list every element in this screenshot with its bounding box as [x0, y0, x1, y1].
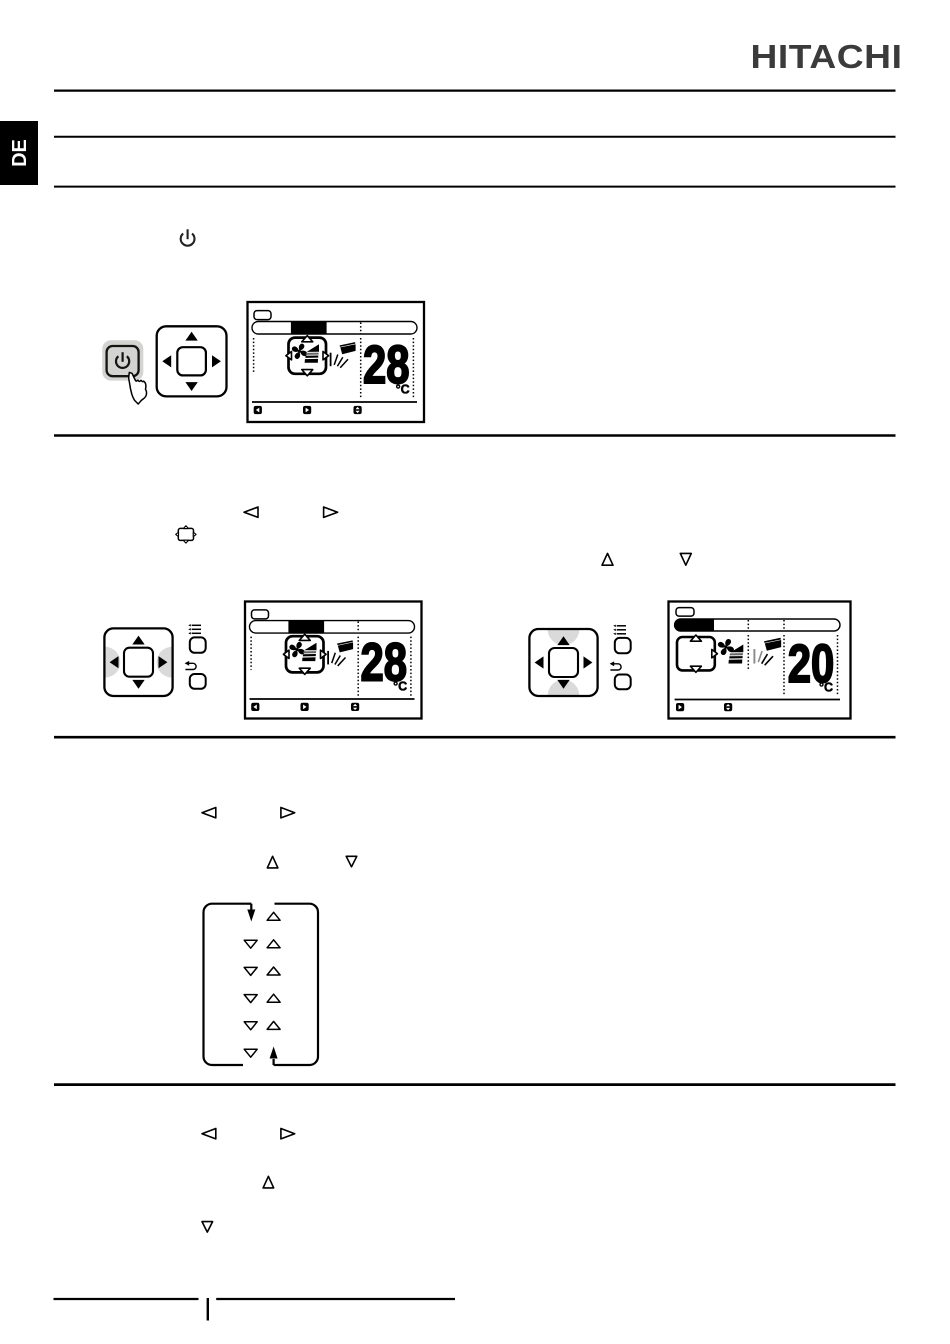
svg-text:HITACHI: HITACHI — [751, 39, 903, 76]
svg-text:°C: °C — [396, 383, 410, 397]
svg-text:°C: °C — [819, 680, 833, 694]
svg-text:°C: °C — [393, 680, 407, 694]
svg-text:DE: DE — [9, 139, 31, 167]
